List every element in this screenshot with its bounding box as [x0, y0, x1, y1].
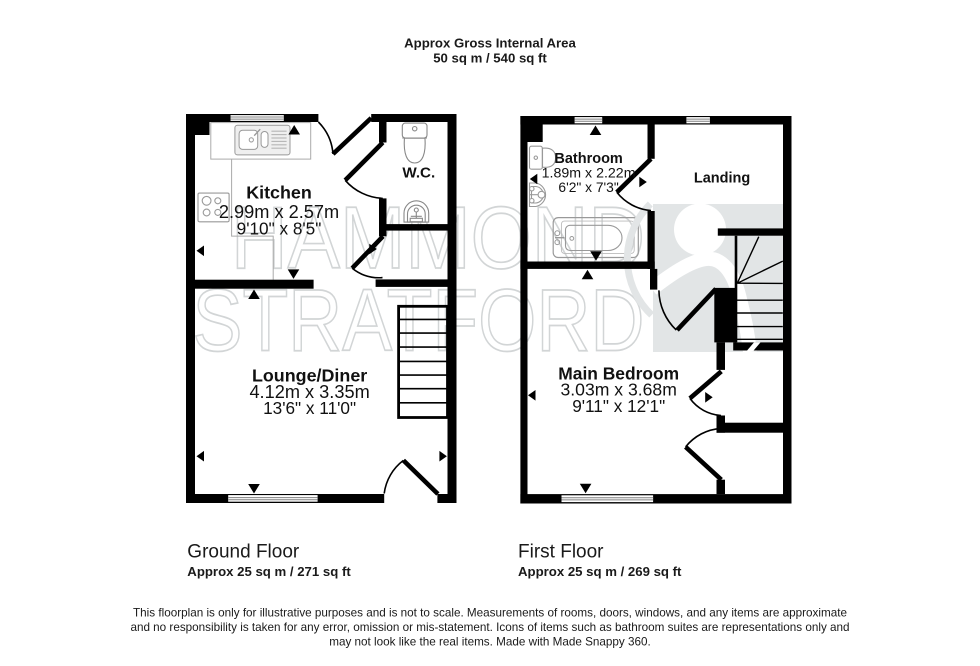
svg-text:9'10" x 8'5": 9'10" x 8'5" [237, 219, 322, 239]
svg-text:and no responsibility is taken: and no responsibility is taken for any e… [130, 621, 849, 634]
svg-text:Kitchen: Kitchen [246, 183, 312, 203]
svg-text:Landing: Landing [694, 171, 750, 187]
svg-text:Approx 25 sq m / 269 sq ft: Approx 25 sq m / 269 sq ft [518, 564, 682, 579]
svg-text:W.C.: W.C. [402, 165, 435, 182]
svg-text:This floorplan is only for ill: This floorplan is only for illustrative … [133, 607, 847, 620]
svg-text:6'2" x 7'3": 6'2" x 7'3" [558, 180, 618, 195]
svg-text:Approx Gross Internal Area: Approx Gross Internal Area [404, 36, 576, 51]
svg-text:First Floor: First Floor [518, 542, 604, 563]
svg-text:Ground Floor: Ground Floor [187, 542, 300, 563]
svg-text:may not look like the real ite: may not look like the real items. Made w… [329, 636, 651, 649]
svg-text:Approx 25 sq m / 271 sq ft: Approx 25 sq m / 271 sq ft [187, 564, 351, 579]
svg-text:50 sq m / 540 sq ft: 50 sq m / 540 sq ft [433, 51, 547, 66]
svg-text:13'6" x 11'0": 13'6" x 11'0" [263, 398, 356, 418]
svg-text:9'11" x 12'1": 9'11" x 12'1" [572, 396, 665, 416]
